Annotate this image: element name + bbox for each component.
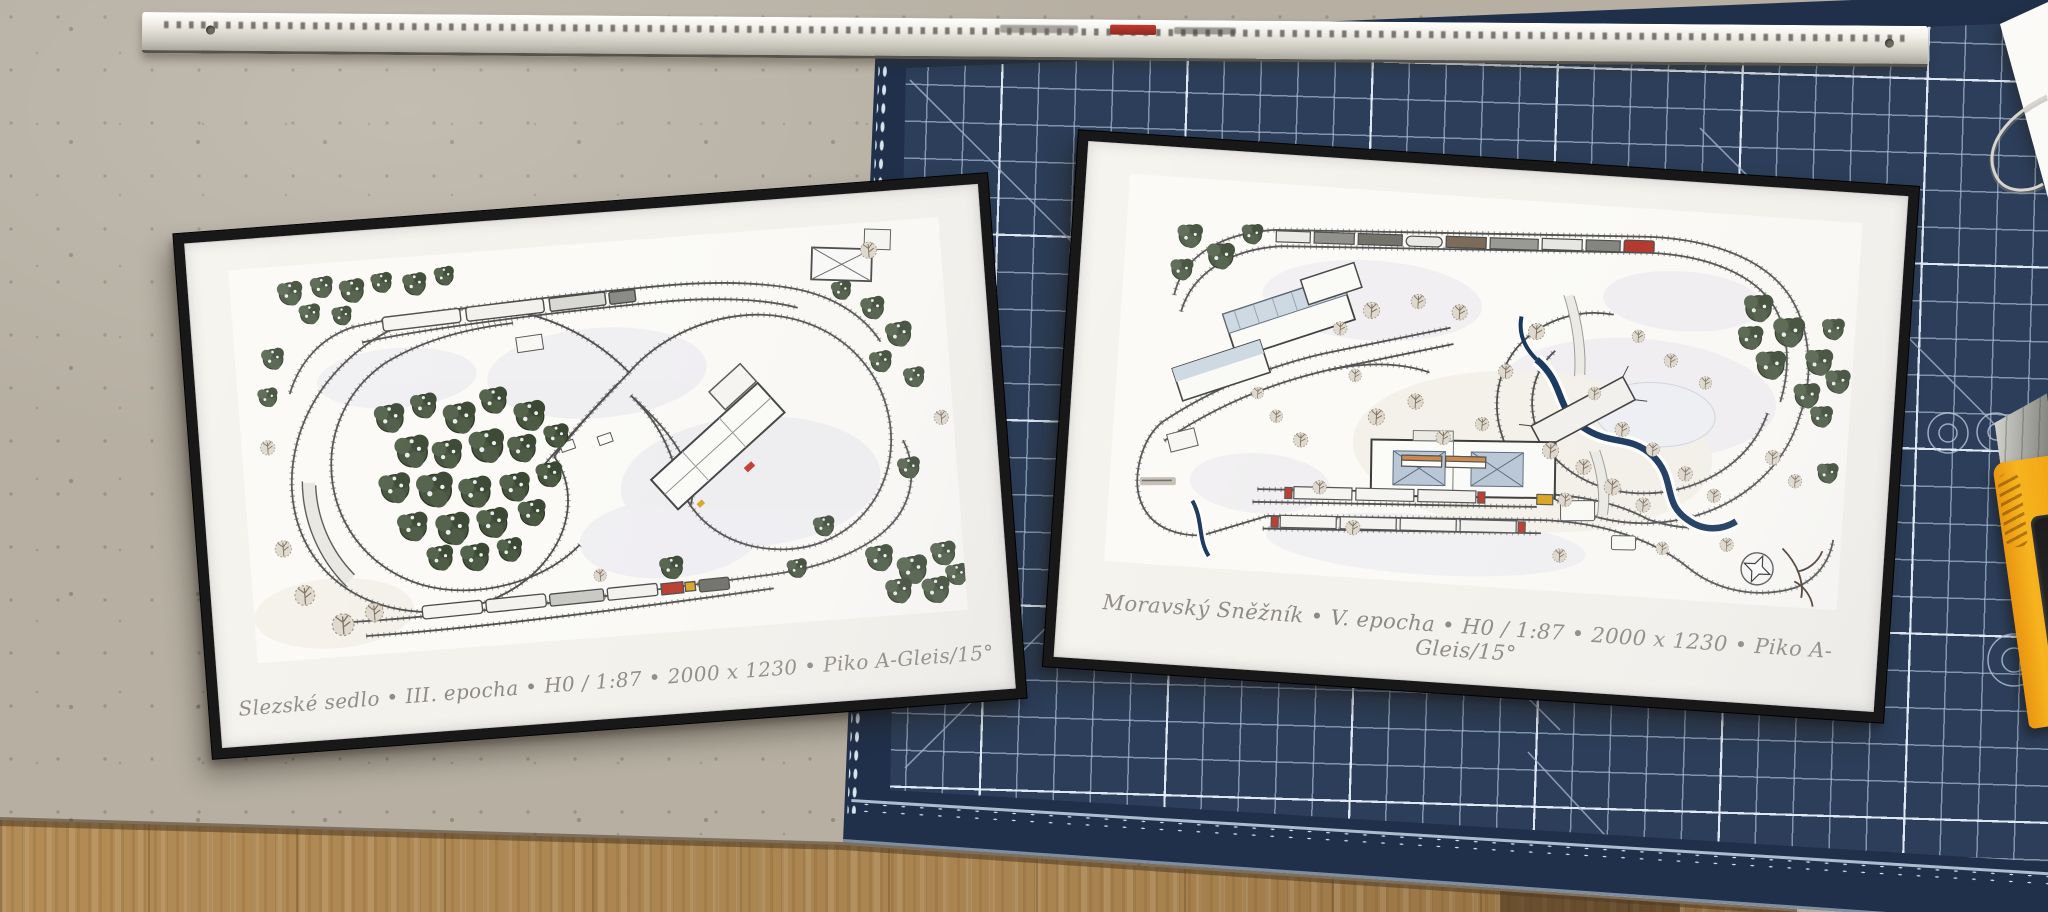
outbuilding-2 [1611,536,1635,550]
track-plan-slezske-sedlo [228,217,968,663]
framed-print-right: Moravský Sněžník • V. epocha • H0 / 1:87… [1043,130,1919,722]
track-plan-moravsky-sneznik [1104,174,1862,610]
artist-signature [1140,477,1176,485]
print-matte-left: Slezské sedlo • III. epocha • H0 / 1:87 … [184,184,1016,748]
ruler-brand-mark-2 [1174,27,1236,34]
small-hut [516,334,544,353]
knife-grip-ridges [1997,472,2029,548]
photo-scene: Slezské sedlo • III. epocha • H0 / 1:87 … [0,0,2048,912]
knife-slider-panel [2030,511,2048,715]
print-matte-right: Moravský Sněžník • V. epocha • H0 / 1:87… [1054,141,1909,712]
ruler-hole-left [206,26,215,35]
ruler-logo-red [1110,25,1156,35]
ruler-brand-mark [1000,25,1078,34]
framed-print-left: Slezské sedlo • III. epocha • H0 / 1:87 … [173,173,1026,759]
ruler-hole-right [1885,39,1894,48]
